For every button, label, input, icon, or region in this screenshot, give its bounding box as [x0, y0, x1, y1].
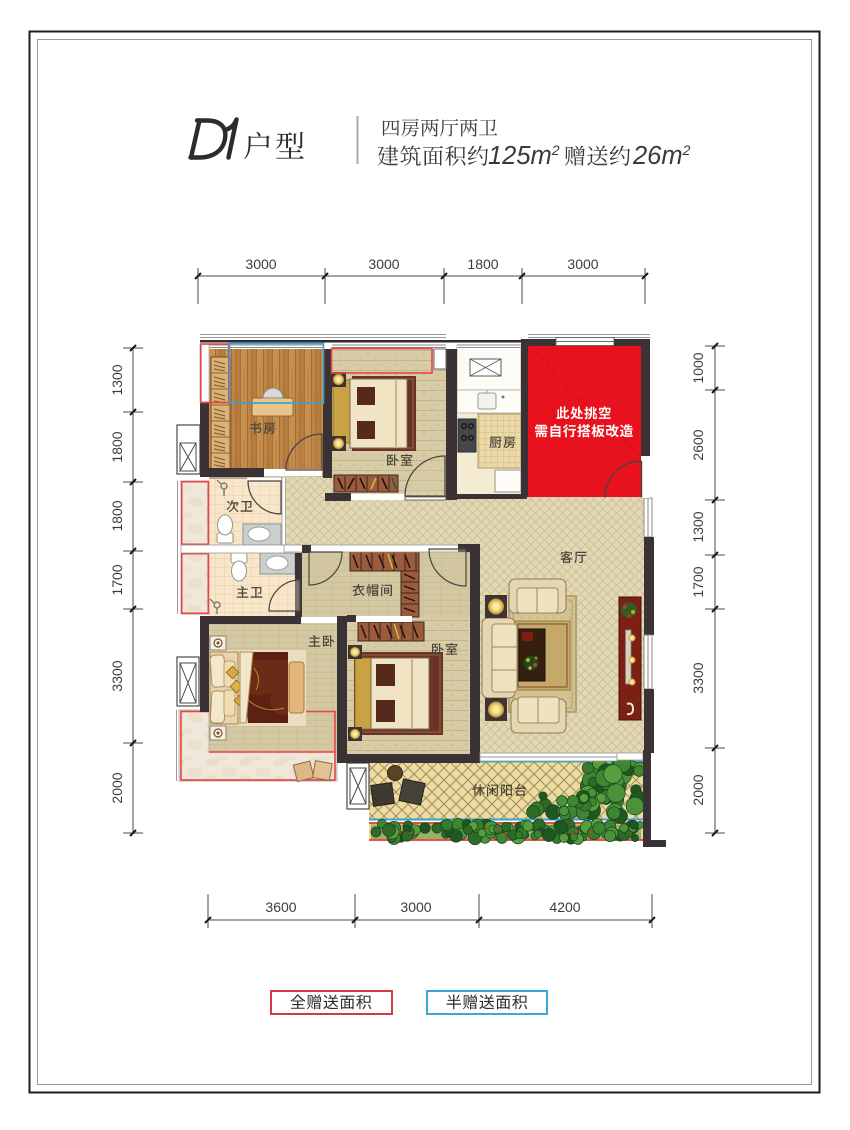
- svg-text:1800: 1800: [467, 256, 498, 272]
- svg-text:1800: 1800: [109, 500, 125, 531]
- svg-text:1000: 1000: [690, 352, 706, 383]
- svg-text:2600: 2600: [690, 429, 706, 460]
- svg-text:3000: 3000: [567, 256, 598, 272]
- svg-text:4200: 4200: [549, 899, 580, 915]
- svg-text:1700: 1700: [690, 566, 706, 597]
- svg-text:2000: 2000: [690, 774, 706, 805]
- svg-text:1300: 1300: [109, 364, 125, 395]
- svg-text:3000: 3000: [368, 256, 399, 272]
- svg-text:125m2: 125m2: [488, 142, 560, 170]
- svg-text:3300: 3300: [109, 660, 125, 691]
- svg-text:3600: 3600: [265, 899, 296, 915]
- svg-text:1700: 1700: [109, 564, 125, 595]
- svg-text:1800: 1800: [109, 431, 125, 462]
- svg-text:3000: 3000: [245, 256, 276, 272]
- svg-text:3300: 3300: [690, 662, 706, 693]
- svg-text:3000: 3000: [400, 899, 431, 915]
- svg-text:1300: 1300: [690, 511, 706, 542]
- svg-text:26m2: 26m2: [632, 142, 691, 170]
- svg-text:2000: 2000: [109, 772, 125, 803]
